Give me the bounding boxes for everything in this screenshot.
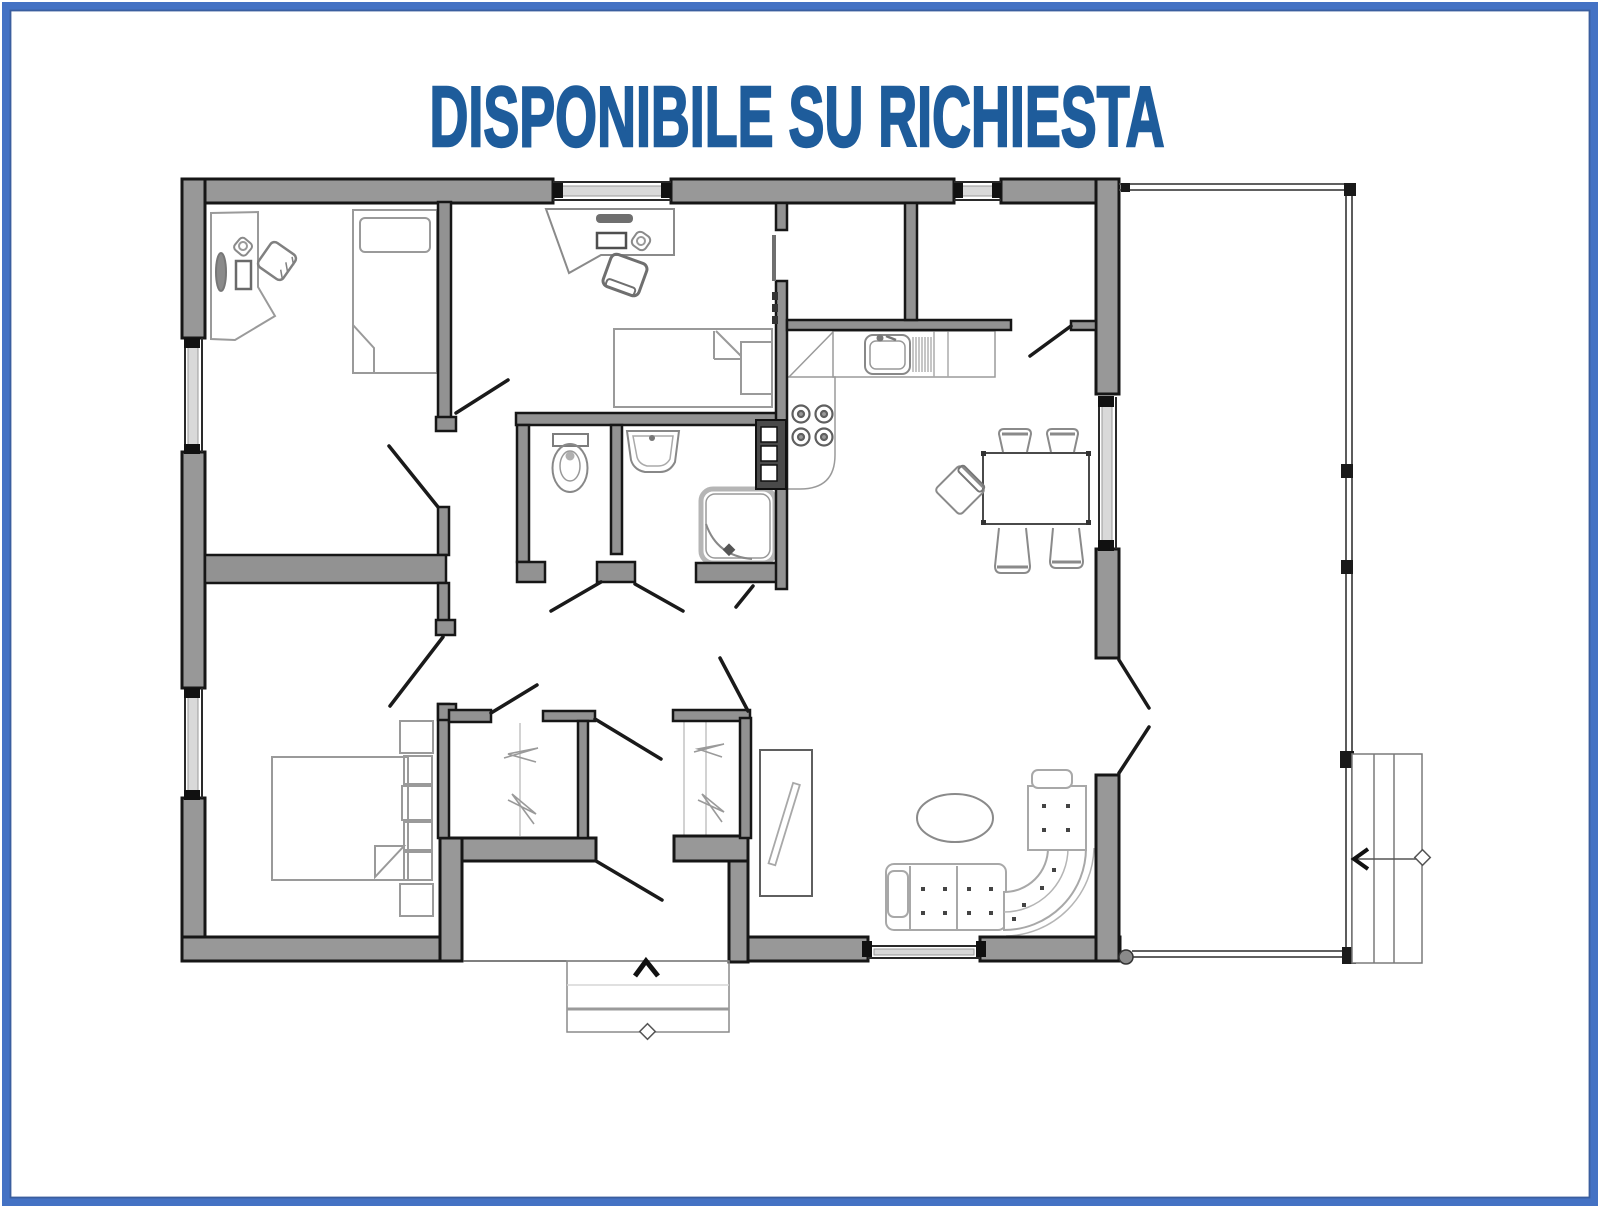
svg-text:DISPONIBILE SU RICHIESTA: DISPONIBILE SU RICHIESTA bbox=[430, 70, 1165, 165]
